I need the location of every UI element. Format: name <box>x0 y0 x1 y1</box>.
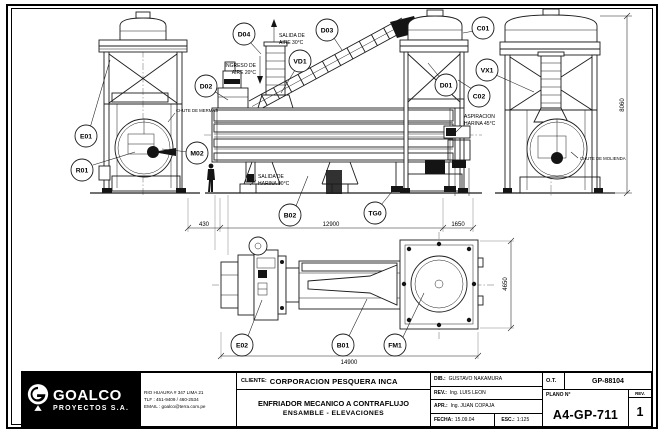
dim-side-height: 8060 <box>620 98 626 112</box>
date-value: 15.09.04 <box>455 417 474 423</box>
meal-outlet-label2: HARINA 90°C <box>258 181 290 187</box>
air-inlet-label: INGRESO DE <box>225 63 257 69</box>
callout-b02: B02 <box>284 213 297 220</box>
company-phone: TLF : 451-9409 / 460-2534 <box>144 397 233 402</box>
number-cell: O.T. GP-88104 PLANO N° A4-GP-711 REV. 1 <box>543 373 651 426</box>
chute-mermas-label: CHUTE DE MERMAS <box>176 108 218 113</box>
revision-label: REV. <box>629 390 651 398</box>
dim-plan-length: 14900 <box>341 360 358 366</box>
client-title-cell: CLIENTE: CORPORACION PESQUERA INCA ENFRI… <box>237 373 431 426</box>
ot-number: GP-88104 <box>565 378 651 385</box>
drawing-title-line1: ENFRIADOR MECANICO A CONTRAFLUJO <box>258 399 409 408</box>
callout-c01: C01 <box>477 26 490 33</box>
drawing-sheet: 8060 430 12900 1650 <box>0 0 670 437</box>
scale-person-figure <box>207 164 215 192</box>
callout-m02: M02 <box>190 151 203 158</box>
chute-molienda-label: CHUTE DE MOLIENDA <box>580 156 626 161</box>
callout-b01: B01 <box>337 343 350 350</box>
reviewed-by: Ing. LUIS LEON <box>450 390 486 396</box>
company-contact-cell: RIO HUAURA # 347 LIMA 21 TLF : 451-9409 … <box>141 373 237 426</box>
callout-vd1: VD1 <box>293 59 306 66</box>
meal-outlet-label: SALIDA DE <box>258 174 285 180</box>
company-name: GOALCO <box>53 388 129 403</box>
approved-label: APR.: <box>434 403 448 409</box>
air-inlet-arrow-icon <box>257 56 263 84</box>
dimension-side-height: 8060 <box>600 13 632 196</box>
callout-d03: D03 <box>321 28 334 35</box>
callout-r01: R01 <box>76 168 89 175</box>
approvals-cell: DIB.: GUSTAVO NAKAMURA REV.: Ing. LUIS L… <box>431 373 543 426</box>
air-outlet-label2: AIRE 30°C <box>279 40 304 46</box>
drawn-label: DIB.: <box>434 376 446 382</box>
scale-value: 1:125 <box>517 417 530 423</box>
drawing-number: A4-GP-711 <box>553 408 618 422</box>
drawn-by: GUSTAVO NAKAMURA <box>449 376 502 382</box>
drawing-title-line2: ENSAMBLE - ELEVACIONES <box>283 410 384 417</box>
front-elevation <box>204 10 482 255</box>
callout-e02: E02 <box>236 343 248 350</box>
approved-by: Ing. JUAN COPAJA <box>451 403 495 409</box>
callout-d01: D01 <box>440 83 453 90</box>
ot-label: O.T. <box>543 373 565 389</box>
dimension-plan-width: 4650 <box>480 238 514 331</box>
title-block: GOALCO PROYECTOS S.A. RIO HUAURA # 347 L… <box>21 371 653 428</box>
dim-front-middle: 12900 <box>323 222 340 228</box>
callout-d04: D04 <box>238 32 251 39</box>
callout-c02: C02 <box>473 94 486 101</box>
client-name: CORPORACION PESQUERA INCA <box>270 377 398 386</box>
company-email: EMAIL : goalco@terra.com.pe <box>144 404 233 409</box>
scale-label: ESC.: <box>501 417 514 423</box>
goalco-logo-icon <box>26 382 50 417</box>
suction-label: ASPIRACION <box>464 114 495 120</box>
callout-vx1: VX1 <box>481 68 494 75</box>
dim-plan-width: 4650 <box>503 277 509 291</box>
callout-e01: E01 <box>80 134 92 141</box>
company-subtitle: PROYECTOS S.A. <box>53 405 129 412</box>
left-end-elevation <box>90 12 200 197</box>
air-outlet-label: SALIDA DE <box>279 33 306 39</box>
company-address: RIO HUAURA # 347 LIMA 21 <box>144 390 233 395</box>
revision-number: 1 <box>637 398 644 426</box>
company-logo-cell: GOALCO PROYECTOS S.A. <box>23 373 141 426</box>
date-label: FECHA: <box>434 417 453 423</box>
air-outlet-arrow-icon <box>271 19 277 42</box>
client-label: CLIENTE: <box>241 378 267 384</box>
right-side-elevation <box>495 9 615 197</box>
callout-tg0: TG0 <box>368 211 381 218</box>
dimension-front-row: 430 12900 1650 <box>185 198 476 232</box>
dim-front-left: 430 <box>199 222 210 228</box>
plano-label: PLANO N° <box>546 392 571 398</box>
dim-front-right: 1650 <box>451 222 465 228</box>
suction-label2: HARINA 45°C <box>464 121 496 127</box>
callout-fm1: FM1 <box>388 343 402 350</box>
reviewed-label: REV.: <box>434 390 447 396</box>
air-inlet-label2: AIRE 20°C <box>232 70 257 76</box>
callout-d02: D02 <box>200 84 213 91</box>
plan-view <box>212 232 495 340</box>
